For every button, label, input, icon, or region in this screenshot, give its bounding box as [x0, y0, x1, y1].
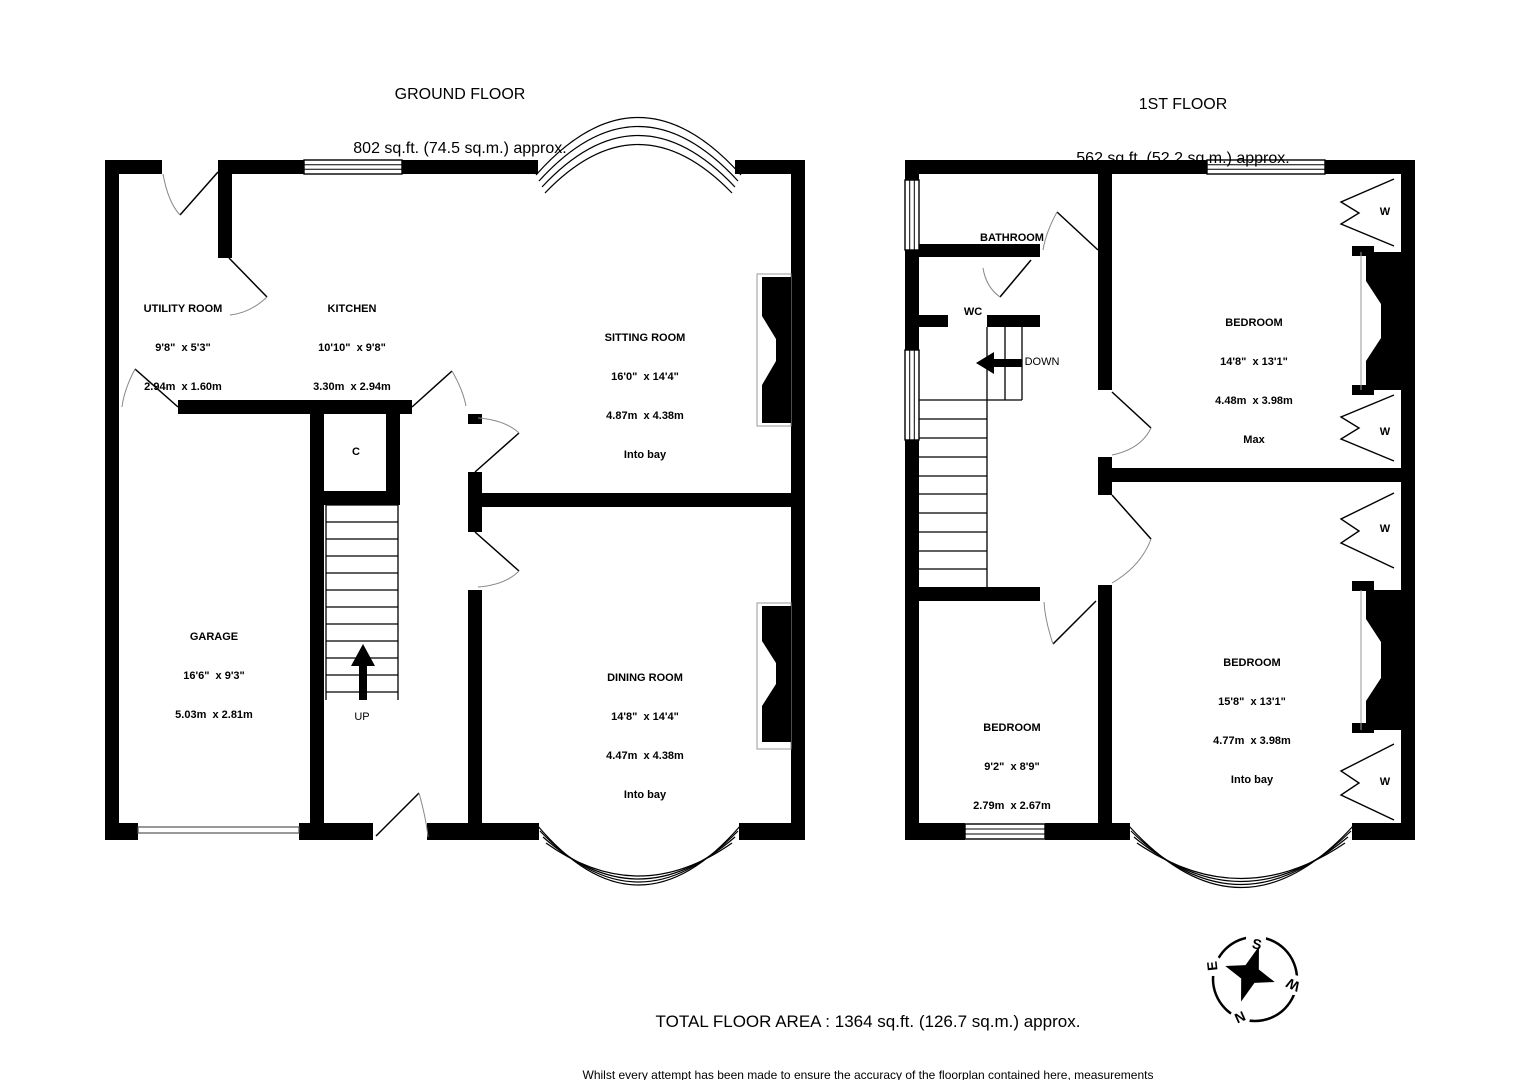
floorplan-drawing: S E W N — [0, 0, 1520, 1080]
wall-segment — [105, 160, 162, 174]
wall-segment — [218, 174, 232, 258]
room-name: BEDROOM — [1213, 657, 1291, 670]
room-dims-imperial: 16'6" x 9'3" — [175, 670, 253, 683]
stairwell-window — [905, 350, 919, 440]
wall-segment — [324, 491, 400, 505]
wall-segment — [468, 414, 482, 424]
room-dims-metric: 4.87m x 4.38m — [605, 410, 686, 423]
wall-segment — [482, 493, 791, 507]
bedroom2-label: BEDROOM 15'8" x 13'1" 4.77m x 3.98m Into… — [1213, 631, 1291, 813]
room-dims-imperial: 14'8" x 13'1" — [1215, 356, 1293, 369]
wall-segment — [1352, 581, 1374, 591]
wall-segment — [310, 414, 324, 823]
stairs-up-label: UP — [354, 711, 369, 723]
wall-segment — [1098, 482, 1112, 495]
room-dims-imperial: 9'8" x 5'3" — [144, 342, 223, 355]
total-floor-area: TOTAL FLOOR AREA : 1364 sq.ft. (126.7 sq… — [579, 1011, 1156, 1033]
bathroom-door — [1043, 212, 1098, 250]
room-dims-metric: 2.94m x 1.60m — [144, 381, 223, 394]
bedroom2-bay-window — [1128, 825, 1354, 888]
disclaimer-line: Whilst every attempt has been made to en… — [579, 1069, 1156, 1080]
wall-segment — [1098, 174, 1112, 390]
wall-segment — [105, 823, 138, 840]
compass-rose: S E W N — [1203, 928, 1304, 1028]
down-arrow — [976, 352, 1022, 374]
garage-label: GARAGE 16'6" x 9'3" 5.03m x 2.81m — [175, 605, 253, 748]
first-floor-title: 1ST FLOOR 562 sq.ft. (52.2 sq.m.) approx… — [1076, 60, 1289, 204]
wardrobe-label: W — [1380, 426, 1390, 438]
room-name: BEDROOM — [973, 722, 1051, 735]
wall-segment — [739, 823, 805, 840]
bathroom-window — [905, 180, 919, 250]
room-name: GARAGE — [175, 631, 253, 644]
ground-floor-title-line: GROUND FLOOR — [353, 86, 566, 104]
room-dims-metric: 4.77m x 3.98m — [1213, 735, 1291, 748]
wall-segment — [1045, 823, 1130, 840]
wall-segment — [218, 160, 304, 174]
bedroom3-door — [1044, 601, 1096, 644]
room-note: Into bay — [605, 449, 686, 462]
room-name: BATHROOM — [980, 232, 1044, 245]
wall-segment — [105, 160, 119, 840]
room-name: WC — [964, 306, 982, 319]
wall-segment — [299, 823, 373, 840]
wall-segment — [1098, 585, 1112, 823]
first-doors — [983, 212, 1151, 644]
utility-kitchen-door — [229, 258, 267, 315]
bathroom-label: BATHROOM — [980, 206, 1044, 271]
sitting-room-bay-window — [536, 118, 741, 194]
rear-hall-door — [376, 793, 428, 837]
room-name: BEDROOM — [1215, 317, 1293, 330]
room-dims-imperial: 15'8" x 13'1" — [1213, 696, 1291, 709]
bedroom1-label: BEDROOM 14'8" x 13'1" 4.48m x 3.98m Max — [1215, 291, 1293, 473]
wardrobe-label: W — [1380, 206, 1390, 218]
room-note: Max — [1215, 434, 1293, 447]
room-name: SITTING ROOM — [605, 332, 686, 345]
dining-room-fireplace — [757, 603, 791, 749]
kitchen-label: KITCHEN 10'10" x 9'8" 3.30m x 2.94m — [313, 277, 391, 420]
wall-segment — [791, 160, 805, 840]
room-dims-imperial: 16'0" x 14'4" — [605, 371, 686, 384]
compass-east-label: E — [1204, 961, 1221, 972]
wall-segment — [468, 472, 482, 532]
wall-segment — [905, 823, 965, 840]
wall-segment — [386, 414, 400, 491]
ground-interior-walls — [178, 174, 791, 823]
room-dims-imperial: 10'10" x 9'8" — [313, 342, 391, 355]
room-name: UTILITY ROOM — [144, 303, 223, 316]
bedroom1-chimney-breast — [1361, 252, 1401, 390]
stairs-down-label: DOWN — [1025, 356, 1060, 368]
sitting-room-door — [475, 418, 519, 472]
wall-segment — [905, 440, 919, 840]
bedroom3-label: BEDROOM 9'2" x 8'9" 2.79m x 2.67m — [973, 696, 1051, 839]
wall-segment — [468, 590, 482, 823]
room-name: DINING ROOM — [606, 672, 684, 685]
first-floor-area: 562 sq.ft. (52.2 sq.m.) approx. — [1076, 150, 1289, 168]
room-dims-metric: 2.79m x 2.67m — [973, 800, 1051, 813]
garage-door — [138, 827, 299, 833]
wall-segment — [905, 587, 1040, 601]
ground-floor-title: GROUND FLOOR 802 sq.ft. (74.5 sq.m.) app… — [353, 50, 566, 194]
bedroom2-door — [1112, 495, 1151, 583]
room-note: Into bay — [606, 789, 684, 802]
wall-segment — [1352, 823, 1415, 840]
compass-south-label: S — [1251, 935, 1263, 953]
dining-room-door — [475, 532, 519, 587]
wc-label: WC — [964, 280, 982, 345]
wall-segment — [1401, 160, 1415, 840]
room-dims-metric: 3.30m x 2.94m — [313, 381, 391, 394]
ground-floor-plan — [105, 118, 805, 886]
dining-room-label: DINING ROOM 14'8" x 14'4" 4.47m x 4.38m … — [606, 646, 684, 828]
room-dims-metric: 4.48m x 3.98m — [1215, 395, 1293, 408]
room-name: KITCHEN — [313, 303, 391, 316]
wardrobe-label: W — [1380, 776, 1390, 788]
front-door — [163, 172, 218, 215]
wall-segment — [917, 315, 948, 327]
utility-room-label: UTILITY ROOM 9'8" x 5'3" 2.94m x 1.60m — [144, 277, 223, 420]
first-floor-title-line: 1ST FLOOR — [1076, 96, 1289, 114]
room-dims-imperial: 14'8" x 14'4" — [606, 711, 684, 724]
sitting-room-label: SITTING ROOM 16'0" x 14'4" 4.87m x 4.38m… — [605, 306, 686, 488]
floorplan-page: S E W N GROUND FLOOR 802 sq.ft. (74.5 sq… — [0, 0, 1520, 1080]
wall-segment — [427, 823, 539, 840]
room-note: Into bay — [1213, 774, 1291, 787]
kitchen-door — [412, 371, 466, 407]
room-dims-metric: 4.47m x 4.38m — [606, 750, 684, 763]
footer: TOTAL FLOOR AREA : 1364 sq.ft. (126.7 sq… — [579, 975, 1156, 1080]
dining-room-bay-window — [537, 825, 741, 885]
bedroom2-chimney-breast — [1361, 590, 1401, 730]
ground-floor-area: 802 sq.ft. (74.5 sq.m.) approx. — [353, 140, 566, 158]
bedroom1-door — [1112, 392, 1151, 455]
sitting-room-fireplace — [757, 274, 791, 426]
wall-segment — [987, 315, 1040, 327]
room-dims-metric: 5.03m x 2.81m — [175, 709, 253, 722]
closet-label: C — [352, 446, 360, 458]
wall-segment — [905, 250, 919, 350]
wardrobe-label: W — [1380, 523, 1390, 535]
room-dims-imperial: 9'2" x 8'9" — [973, 761, 1051, 774]
